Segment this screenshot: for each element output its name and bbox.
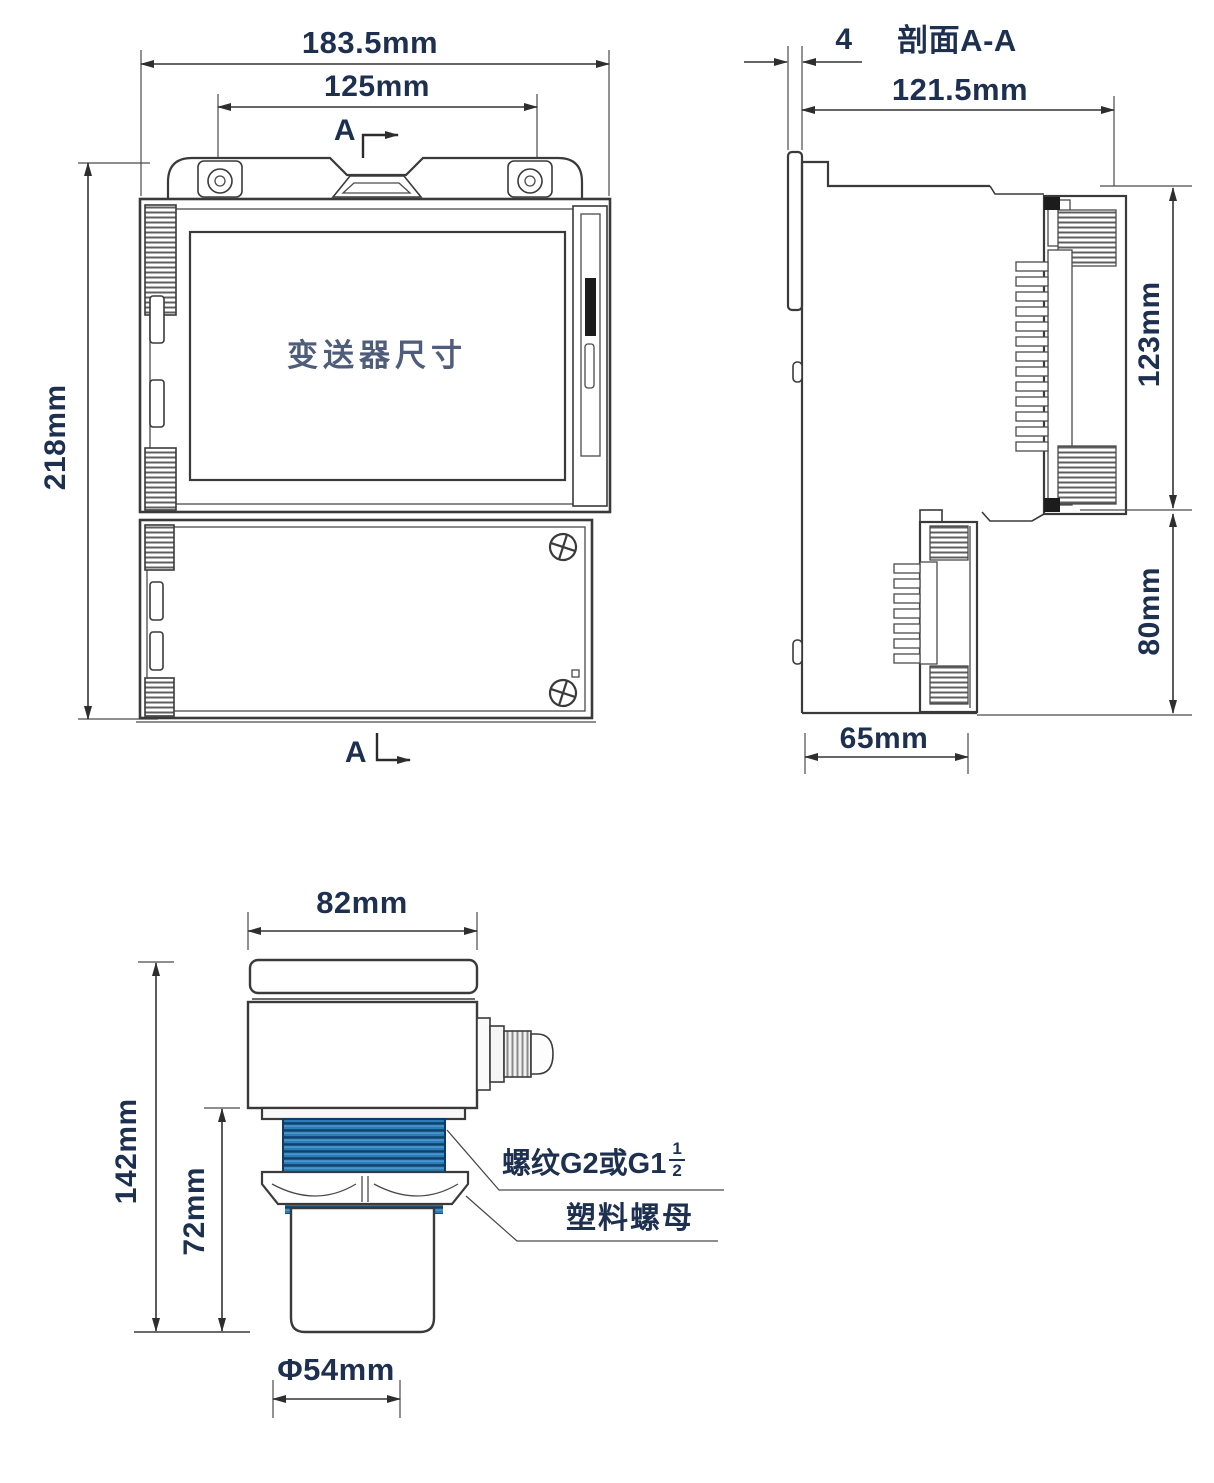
dimension-label-lower-height: 80mm xyxy=(1133,561,1168,661)
dimension-label-front-inner-width: 125mm xyxy=(297,70,457,105)
display-window-label: 变送器尺寸 xyxy=(252,338,502,374)
section-marker-top: A xyxy=(325,114,365,149)
thread-note-fraction: 1 2 xyxy=(669,1140,684,1180)
section-view-title: 剖面A-A xyxy=(872,23,1042,59)
dimension-label-front-height: 218mm xyxy=(39,357,74,517)
dimension-label-front-width: 183.5mm xyxy=(270,25,470,61)
dimension-label-sensor-width: 82mm xyxy=(282,885,442,921)
thread-note: 螺纹G2或G1 1 2 xyxy=(502,1140,685,1182)
section-marker-bottom: A xyxy=(336,736,376,771)
thread-note-text: 螺纹G2或G1 xyxy=(502,1140,666,1182)
dimension-label-upper-height: 123mm xyxy=(1133,274,1168,394)
front-view-linework xyxy=(78,50,610,760)
dimension-label-plate-thickness: 4 xyxy=(822,23,866,58)
dimension-label-probe-diameter: Φ54mm xyxy=(256,1352,416,1388)
dimension-label-depth: 65mm xyxy=(814,722,954,757)
dimension-label-sensor-lower-height: 72mm xyxy=(178,1156,213,1266)
dimension-label-sensor-total-height: 142mm xyxy=(110,1086,145,1216)
side-view-linework xyxy=(744,46,1192,774)
cable-gland xyxy=(477,1018,553,1090)
technical-drawing-canvas: 183.5mm 125mm A 218mm 变送器尺寸 A 4 剖面A-A 12… xyxy=(0,0,1214,1483)
dimension-label-side-width: 121.5mm xyxy=(870,72,1050,108)
nut-note: 塑料螺母 xyxy=(540,1202,720,1237)
